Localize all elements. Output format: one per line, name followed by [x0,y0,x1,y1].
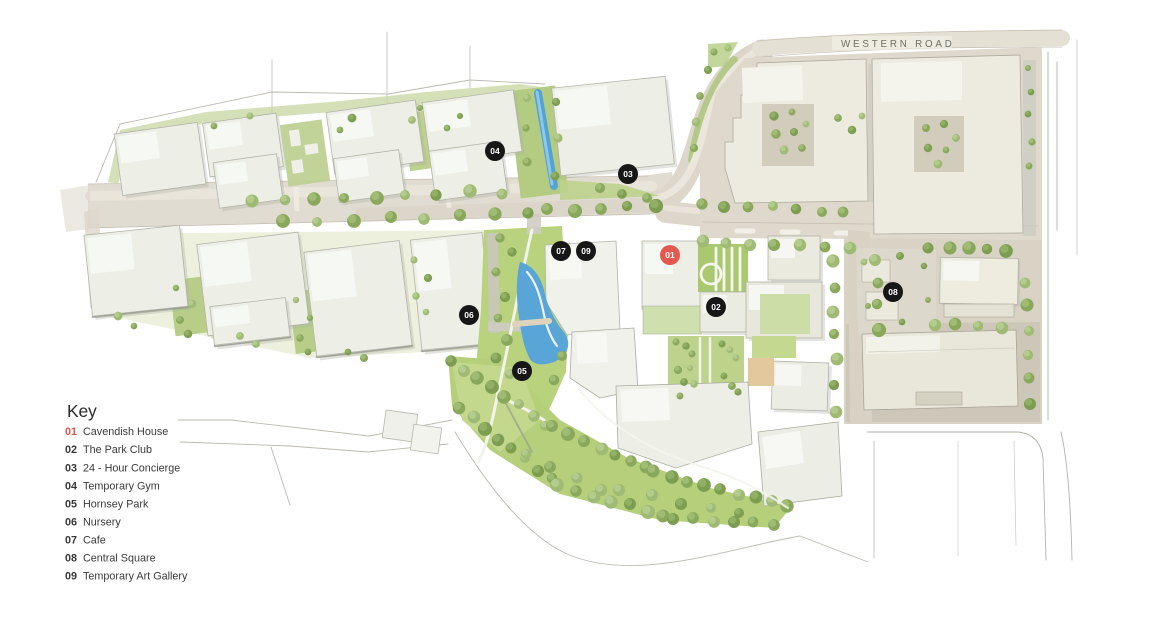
svg-text:Cafe: Cafe [83,535,106,547]
svg-text:07: 07 [65,535,77,547]
svg-text:Cavendish House: Cavendish House [83,426,168,438]
svg-text:04: 04 [65,480,77,492]
svg-text:Temporary Gym: Temporary Gym [83,480,160,492]
svg-text:09: 09 [581,246,591,256]
svg-text:Nursery: Nursery [83,517,121,529]
svg-text:02: 02 [711,302,721,312]
svg-text:06: 06 [464,310,474,320]
svg-text:09: 09 [65,571,77,583]
svg-text:05: 05 [65,498,77,510]
svg-text:01: 01 [65,426,77,438]
svg-text:24 - Hour Concierge: 24 - Hour Concierge [83,462,180,474]
svg-text:06: 06 [65,517,77,529]
svg-text:Temporary Art Gallery: Temporary Art Gallery [83,571,188,583]
svg-text:Hornsey Park: Hornsey Park [83,498,149,510]
svg-text:07: 07 [556,246,566,256]
svg-text:02: 02 [65,444,77,456]
svg-text:Key: Key [67,401,97,421]
svg-text:WESTERN ROAD: WESTERN ROAD [841,39,955,50]
svg-text:Central Square: Central Square [83,553,156,565]
svg-text:04: 04 [490,146,500,156]
svg-text:08: 08 [65,553,77,565]
svg-text:08: 08 [888,287,898,297]
svg-text:03: 03 [65,462,77,474]
svg-text:03: 03 [623,169,633,179]
svg-text:The Park Club: The Park Club [83,444,152,456]
svg-text:05: 05 [517,366,527,376]
svg-text:01: 01 [665,250,675,260]
